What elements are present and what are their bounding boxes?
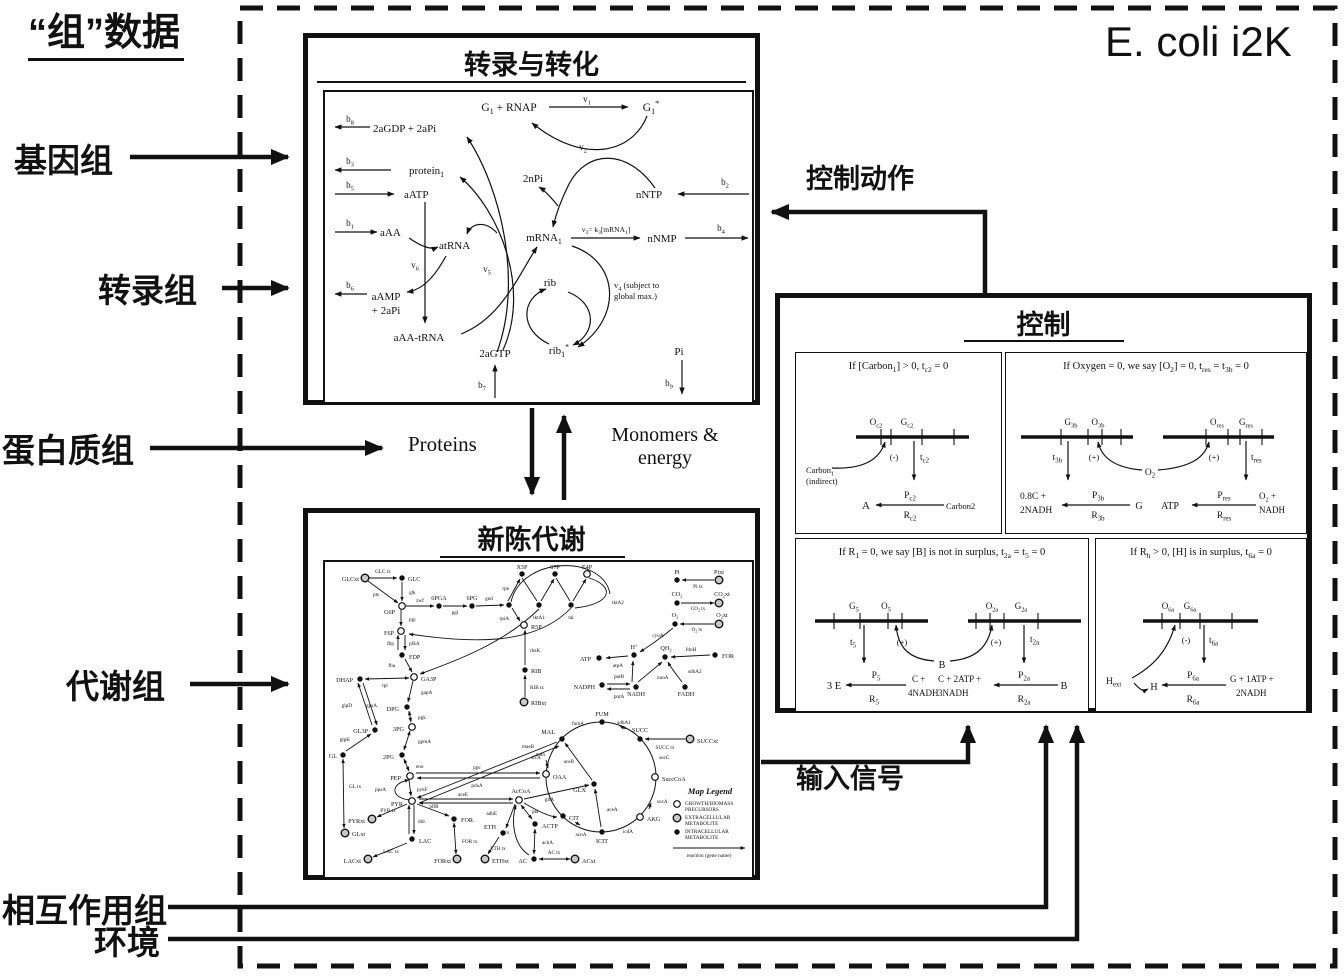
- diagram-text: C +: [912, 674, 925, 684]
- metabolism-box-title: 新陈代谢: [308, 518, 755, 557]
- control-panel-surplus-h-rule: O6aG6a(-)t6aHextHP6aR6aG + 1ATP +2NADHIf…: [1095, 538, 1307, 712]
- diagram-text: Pc2: [904, 491, 916, 503]
- diagram-edge: [541, 579, 554, 601]
- diagram-edge: [409, 780, 411, 796]
- omics-label-metabolome: 代谢组: [66, 660, 165, 708]
- diagram-text: mdh: [536, 752, 546, 758]
- diagram-text: 3NADH: [938, 688, 969, 698]
- diagram-edge: [668, 662, 682, 682]
- metabolite-node-i: [637, 736, 642, 741]
- diagram-text: P5: [872, 671, 881, 683]
- metabolite-node-i: [522, 667, 527, 672]
- metabolite-node-e: [715, 599, 723, 607]
- diagram-text: v2: [579, 142, 587, 155]
- diagram-text: SUCCxt: [697, 738, 718, 745]
- diagram-text: If [Carbon1] > 0, tc2 = 0: [849, 361, 948, 374]
- metabolite-node-i: [399, 752, 404, 757]
- diagram-layer: O6aG6a(-)t6aHextHP6aR6aG + 1ATP +2NADHIf…: [1096, 539, 1306, 711]
- diagram-text: E4P: [582, 564, 593, 571]
- diagram-text: reaction (gene name): [687, 852, 732, 859]
- diagram-text: NADH: [627, 691, 645, 698]
- diagram-text: rpe: [502, 586, 509, 592]
- transcription-translation-box: 转录与转化 G1 + RNAPv1G1*b82aGDP + 2aPib3prot…: [303, 33, 760, 405]
- diagram-text: AKG: [647, 816, 661, 823]
- diagram-text: pgi: [409, 617, 416, 623]
- diagram-text: 6PGA: [431, 595, 447, 602]
- diagram-text: PEP: [390, 775, 401, 782]
- diagram-text: Oc2: [870, 417, 883, 430]
- diagram-text: global max.): [614, 291, 657, 301]
- diagram-text: Hext: [1106, 677, 1121, 689]
- diagram-text: MAL: [541, 729, 555, 736]
- diagram-text: sucC: [659, 755, 670, 761]
- diagram-text: PYR tx: [380, 808, 396, 814]
- control-box-title: 控制: [780, 303, 1307, 342]
- diagram-text: PRECURSORS: [685, 807, 719, 813]
- diagram-layer: G1 + RNAPv1G1*b82aGDP + 2aPib3protein1b5…: [325, 92, 752, 402]
- diagram-edge: [343, 759, 344, 828]
- diagram-text: R5P: [531, 624, 542, 631]
- diagram-text: C + 2ATP +: [938, 674, 981, 684]
- diagram-text: nNTP: [636, 189, 662, 201]
- diagram-text: ackA: [542, 840, 553, 846]
- diagram-text: G3b: [1065, 417, 1078, 430]
- metabolite-node-g: [637, 814, 644, 821]
- diagram-text: gpsA: [366, 703, 377, 709]
- diagram-text: Rres: [1217, 511, 1232, 523]
- control-panel-oxygen-rule: G3bO3bOresGrest3b(+)O2(+)tres0.8C +2NADH…: [1005, 352, 1307, 534]
- diagram-text: tal: [568, 615, 574, 621]
- diagram-edge: [1134, 683, 1148, 690]
- diagram-text: cyoA: [652, 633, 663, 639]
- diagram-text: GL3P: [353, 728, 368, 735]
- diagram-text: b7: [478, 380, 487, 393]
- diagram-text: ETH tx: [490, 846, 506, 852]
- diagram-text: tres: [1251, 453, 1262, 465]
- diagram-text: FUM: [595, 711, 609, 718]
- diagram-text: gltA: [545, 797, 554, 803]
- diagram-text: gnd: [485, 596, 493, 602]
- diagram-text: pgk: [418, 715, 426, 721]
- metabolite-node-i: [409, 836, 414, 841]
- metabolite-node-g: [409, 798, 416, 805]
- diagram-text: GA3P: [421, 676, 437, 683]
- diagram-text: FORxt: [434, 858, 451, 865]
- metabolite-node-i: [451, 816, 456, 821]
- diagram-text: O2 tx: [692, 627, 703, 633]
- diagram-text: H+: [631, 642, 638, 651]
- diagram-edge: [409, 608, 571, 640]
- diagram-text: H: [1150, 682, 1157, 693]
- diagram-canvas: “组”数据 基因组转录组蛋白质组代谢组相互作用组环境 E. coli i2K P…: [0, 0, 1344, 976]
- diagram-text: Gres: [1239, 417, 1254, 430]
- diagram-edge: [522, 578, 537, 601]
- diagram-edge: [365, 678, 409, 679]
- metabolite-node-e: [368, 815, 376, 823]
- title-rule: [317, 81, 746, 83]
- diagram-text: (indirect): [806, 476, 838, 486]
- diagram-edge: [508, 579, 520, 601]
- diagram-text: pckA: [471, 783, 482, 789]
- diagram-text: fba: [388, 662, 395, 669]
- diagram-text: GLX: [573, 787, 586, 794]
- diagram-text: Pixt: [714, 569, 724, 576]
- diagram-text: AC: [518, 858, 527, 865]
- metabolite-node-i: [399, 575, 404, 580]
- diagram-text: aAMP: [372, 291, 401, 303]
- omics-data-title: “组”数据: [28, 12, 184, 61]
- diagram-edge: [671, 655, 710, 657]
- metabolite-node-i: [357, 676, 362, 681]
- title-rule: [440, 556, 625, 558]
- metabolite-node-i: [536, 602, 541, 607]
- diagram-text: SuccCoA: [662, 776, 686, 783]
- diagram-text: b9: [665, 378, 673, 391]
- metabolite-node-i: [674, 577, 679, 582]
- diagram-text: O6a: [1162, 601, 1175, 614]
- diagram-text: F6P: [384, 630, 395, 637]
- diagram-text: G + 1ATP +: [1230, 674, 1274, 684]
- diagram-text: FADH: [678, 691, 695, 698]
- diagram-edge: [461, 247, 537, 334]
- diagram-text: 2NADH: [1020, 506, 1052, 516]
- diagram-edge: [1158, 442, 1209, 470]
- diagram-text: S7P: [550, 564, 561, 571]
- diagram-text: GLC: [408, 576, 420, 583]
- diagram-text: CO2 tx: [691, 606, 706, 612]
- diagram-text: pykF: [417, 787, 428, 793]
- diagram-text: CO2: [672, 591, 683, 599]
- diagram-text: 0.8C +: [1020, 492, 1046, 502]
- diagram-text: v6: [411, 260, 420, 273]
- diagram-edge: [408, 681, 413, 702]
- diagram-text: t3b: [1053, 453, 1063, 465]
- diagram-text: FOR: [722, 653, 735, 660]
- metabolite-node-e: [571, 855, 579, 863]
- diagram-text: P3b: [1092, 491, 1105, 503]
- diagram-text: Ores: [1210, 417, 1225, 430]
- metabolite-node-i: [596, 655, 601, 660]
- diagram-text: GLxt: [352, 831, 365, 838]
- metabolism-box: 新陈代谢 GLCxtGLCG6P6PGA6PGX5PS7PE4PR5PRIBRI…: [303, 508, 760, 880]
- metabolite-node-i: [506, 602, 511, 607]
- diagram-text: AcCoA: [512, 788, 531, 795]
- diagram-text: SUCC: [632, 727, 648, 734]
- diagram-text: 2PG: [383, 754, 395, 761]
- diagram-text: G6a: [1184, 601, 1197, 614]
- metabolite-node-i: [531, 856, 536, 861]
- diagram-text: O2: [1145, 468, 1156, 480]
- control-action-label: 控制动作: [806, 164, 914, 195]
- diagram-text: O2: [672, 612, 679, 620]
- diagram-text: icdA: [623, 829, 633, 835]
- diagram-text: pntB: [614, 674, 625, 680]
- diagram-text: G2a: [1015, 601, 1028, 614]
- monomers-energy-label: Monomers &energy: [583, 424, 747, 470]
- diagram-text: DHAP: [336, 677, 353, 684]
- diagram-text: sucA: [657, 799, 668, 805]
- diagram-text: pflB: [429, 803, 439, 810]
- metabolite-node-g: [584, 571, 591, 578]
- diagram-text: ppc: [473, 765, 481, 771]
- diagram-text: ICIT: [596, 838, 608, 845]
- metabolism-map: GLCxtGLCG6P6PGA6PGX5PS7PE4PR5PRIBRIBxtF6…: [323, 560, 754, 879]
- metabolite-node-e: [364, 855, 372, 863]
- metabolite-node-e: [453, 855, 461, 863]
- diagram-text: b1: [346, 218, 354, 231]
- metabolite-node-g: [674, 801, 681, 808]
- diagram-text: GLC tx: [375, 569, 391, 575]
- omics-label-environment: 环境: [94, 916, 160, 964]
- diagram-text: RIBxt: [531, 700, 546, 707]
- diagram-edge: [417, 742, 557, 798]
- diagram-text: 6PG: [466, 595, 478, 602]
- metabolite-node-i: [672, 621, 677, 626]
- diagram-text: gpmA: [418, 739, 431, 745]
- diagram-text: GL tx: [349, 784, 361, 790]
- diagram-text: nNMP: [647, 233, 676, 245]
- diagram-edge: [832, 442, 885, 468]
- diagram-text: rib: [544, 277, 557, 289]
- diagram-text: (-): [1182, 635, 1191, 645]
- diagram-text: O2 +: [1259, 491, 1276, 504]
- metabolite-node-i: [340, 752, 345, 757]
- metabolite-node-e: [715, 576, 723, 584]
- diagram-text: b6: [346, 280, 355, 293]
- metabolite-node-g: [409, 724, 416, 731]
- input-signal-label: 输入信号: [796, 764, 904, 795]
- diagram-text: dld: [418, 819, 425, 825]
- diagram-text: A: [862, 500, 870, 512]
- diagram-text: pfkA: [409, 640, 420, 647]
- metabolite-node-i: [599, 719, 604, 724]
- diagram-layer: G3bO3bOresGrest3b(+)O2(+)tres0.8C +2NADH…: [1006, 353, 1306, 533]
- diagram-text: rbsK: [530, 648, 540, 654]
- diagram-text: atpA: [613, 663, 623, 669]
- control-panel-carbon-rule: Oc2Gc2(-)tc2Carbon1(indirect)Pc2Rc2ACarb…: [795, 352, 1002, 534]
- diagram-text: X5P: [516, 564, 528, 571]
- diagram-text: Map Legend: [687, 786, 733, 796]
- diagram-edge: [409, 238, 438, 248]
- diagram-text: Gc2: [901, 417, 914, 430]
- diagram-text: pntA: [614, 694, 625, 700]
- diagram-text: v5: [483, 264, 491, 277]
- diagram-text: PYRxt: [348, 818, 365, 825]
- metabolite-node-g: [398, 628, 405, 635]
- diagram-text: FOR tx: [462, 839, 478, 845]
- diagram-text: If Oxygen = 0, we say [O2] = 0, tres = t…: [1063, 361, 1249, 374]
- metabolite-node-i: [674, 600, 679, 605]
- diagram-edge: [556, 578, 570, 601]
- diagram-text: LACxt: [344, 858, 361, 865]
- diagram-text: eno: [416, 764, 424, 770]
- diagram-text: GL: [329, 753, 337, 760]
- metabolite-node-e: [673, 814, 681, 822]
- diagram-text: AC tx: [548, 850, 561, 856]
- diagram-text: G: [1135, 501, 1142, 512]
- diagram-text: aATP: [404, 189, 428, 201]
- diagram-text: LAC: [419, 838, 431, 845]
- transcription-box-title: 转录与转化: [308, 43, 755, 82]
- diagram-text: Carbon2: [946, 501, 975, 511]
- diagram-text: QH2: [660, 645, 671, 653]
- diagram-text: G1 + RNAP: [481, 102, 536, 116]
- diagram-text: adhE: [486, 811, 497, 817]
- diagram-text: t5: [850, 638, 857, 650]
- diagram-text: b4: [717, 223, 726, 236]
- diagram-edge: [539, 187, 558, 206]
- diagram-edge: [420, 609, 539, 674]
- diagram-text: RIB tx: [530, 685, 544, 691]
- diagram-text: glpD: [342, 703, 353, 709]
- diagram-edge: [404, 731, 410, 750]
- diagram-text: tc2: [920, 453, 930, 465]
- diagram-text: NADPH: [574, 684, 596, 691]
- metabolite-node-i: [559, 736, 564, 741]
- diagram-text: O3b: [1092, 417, 1105, 430]
- diagram-text: 4NADH: [908, 688, 939, 698]
- diagram-text: If R1 = 0, we say [B] is not in surplus,…: [839, 547, 1046, 560]
- diagram-text: b3: [346, 156, 354, 169]
- diagram-text: ppsA: [375, 787, 386, 793]
- diagram-text: O2a: [986, 601, 999, 614]
- diagram-text: sdhA1: [617, 720, 631, 726]
- diagram-text: v1: [583, 94, 591, 107]
- diagram-text: rib1*: [549, 342, 569, 359]
- diagram-edge: [1098, 442, 1142, 470]
- transcription-diagram: G1 + RNAPv1G1*b82aGDP + 2aPib3protein1b5…: [323, 90, 754, 404]
- metabolite-node-i: [469, 603, 474, 608]
- diagram-text: R6a: [1187, 695, 1200, 707]
- diagram-text: Pi: [674, 346, 683, 358]
- metabolite-node-g: [521, 622, 528, 629]
- diagram-text: tpi: [382, 683, 388, 689]
- diagram-text: pta: [532, 809, 539, 815]
- metabolite-node-i: [633, 684, 638, 689]
- diagram-text: pts: [373, 592, 379, 598]
- diagram-text: aAA-tRNA: [394, 332, 445, 344]
- diagram-edge: [476, 605, 504, 606]
- diagram-text: Rc2: [904, 511, 917, 523]
- diagram-text: maeB: [522, 744, 535, 750]
- metabolite-node-i: [372, 727, 377, 732]
- metabolite-node-e: [361, 574, 369, 582]
- metabolite-node-g: [543, 771, 550, 778]
- control-action-arrow: [772, 212, 985, 294]
- metabolite-node-i: [552, 571, 557, 576]
- diagram-edge: [395, 780, 410, 800]
- model-name-label: E. coli i2K: [1105, 18, 1292, 66]
- diagram-text: tktA2: [612, 600, 624, 606]
- diagram-text: Pi tx: [693, 584, 703, 590]
- diagram-text: NADH: [1259, 505, 1285, 515]
- diagram-text: t6a: [1209, 636, 1218, 648]
- diagram-text: (+): [897, 637, 908, 647]
- diagram-text: nuoA: [657, 675, 669, 681]
- diagram-text: DPG: [387, 706, 400, 713]
- diagram-text: aceB: [564, 759, 575, 765]
- control-box: 控制 Oc2Gc2(-)tc2Carbon1(indirect)Pc2Rc2AC…: [775, 293, 1312, 713]
- diagram-text: v3= k3[mRNA1]: [582, 225, 630, 236]
- diagram-text: protein1: [409, 165, 444, 179]
- diagram-text: If Rh > 0, [H] is in surplus, t6a = 0: [1130, 547, 1272, 560]
- metabolite-node-g: [652, 774, 659, 781]
- diagram-edge: [575, 578, 606, 608]
- diagram-text: (-): [890, 452, 899, 462]
- diagram-text: METABOLITE: [685, 835, 718, 841]
- metabolite-node-i: [591, 781, 596, 786]
- input-signal-arrow: [761, 726, 968, 762]
- diagram-text: P2a: [1018, 671, 1030, 683]
- diagram-edge: [568, 292, 590, 345]
- diagram-text: G1*: [643, 99, 660, 116]
- diagram-text: LAC tx: [383, 849, 399, 855]
- metabolite-node-g: [407, 773, 414, 780]
- metabolite-node-i: [436, 603, 441, 608]
- diagram-text: ATP: [580, 656, 592, 663]
- metabolite-node-i: [682, 684, 687, 689]
- diagram-edge: [454, 823, 456, 854]
- proteins-label: Proteins: [408, 432, 477, 456]
- diagram-text: FOR: [461, 817, 474, 824]
- metabolite-node-e: [686, 735, 694, 743]
- metabolite-node-e: [341, 829, 349, 837]
- metabolite-node-i: [712, 652, 717, 657]
- diagram-text: O5: [881, 601, 891, 614]
- diagram-text: Pi: [674, 569, 679, 576]
- diagram-text: sdhA2: [688, 669, 702, 675]
- diagram-text: aceA: [607, 807, 618, 813]
- diagram-text: (+): [1089, 452, 1100, 462]
- diagram-edge: [573, 579, 586, 601]
- title-rule: [964, 340, 1124, 342]
- diagram-edge: [606, 656, 628, 658]
- diagram-text: mRNA1: [526, 232, 562, 246]
- metabolite-node-i: [399, 652, 404, 657]
- diagram-edge: [467, 137, 508, 352]
- diagram-text: b5: [346, 180, 354, 193]
- omics-label-genome: 基因组: [14, 134, 113, 182]
- diagram-text: O2xt: [716, 612, 728, 620]
- diagram-text: Pres: [1217, 491, 1231, 503]
- diagram-edge: [467, 224, 497, 234]
- diagram-text: G5: [849, 601, 859, 614]
- diagram-text: G6P: [384, 609, 396, 616]
- diagram-text: P6a: [1187, 671, 1199, 683]
- diagram-text: glk: [409, 590, 416, 596]
- diagram-text: 2NADH: [1236, 688, 1267, 698]
- diagram-edge: [404, 759, 409, 771]
- diagram-text: glpK: [340, 737, 351, 743]
- control-panel-surplus-b-rule: G5O5O2aG2at5(+)B(+)t2aP5R53 EC +4NADHC +…: [795, 538, 1089, 712]
- diagram-text: PYR: [391, 801, 404, 808]
- diagram-text: 2aGTP: [479, 348, 510, 360]
- diagram-text: RIB: [531, 668, 541, 675]
- omics-label-transcriptome: 转录组: [98, 264, 197, 312]
- diagram-text: ETH: [484, 824, 497, 831]
- diagram-text: t2a: [1030, 635, 1039, 647]
- metabolite-node-i: [519, 571, 524, 576]
- metabolite-node-e: [520, 698, 528, 706]
- diagram-edge: [527, 289, 549, 344]
- metabolite-node-e: [481, 855, 489, 863]
- diagram-text: tktA1: [533, 615, 545, 621]
- diagram-text: METABOLITE: [685, 821, 718, 827]
- diagram-edge: [1132, 625, 1175, 678]
- metabolite-node-i: [599, 829, 604, 834]
- diagram-text: OAA: [553, 774, 567, 781]
- metabolite-node-i: [631, 652, 636, 657]
